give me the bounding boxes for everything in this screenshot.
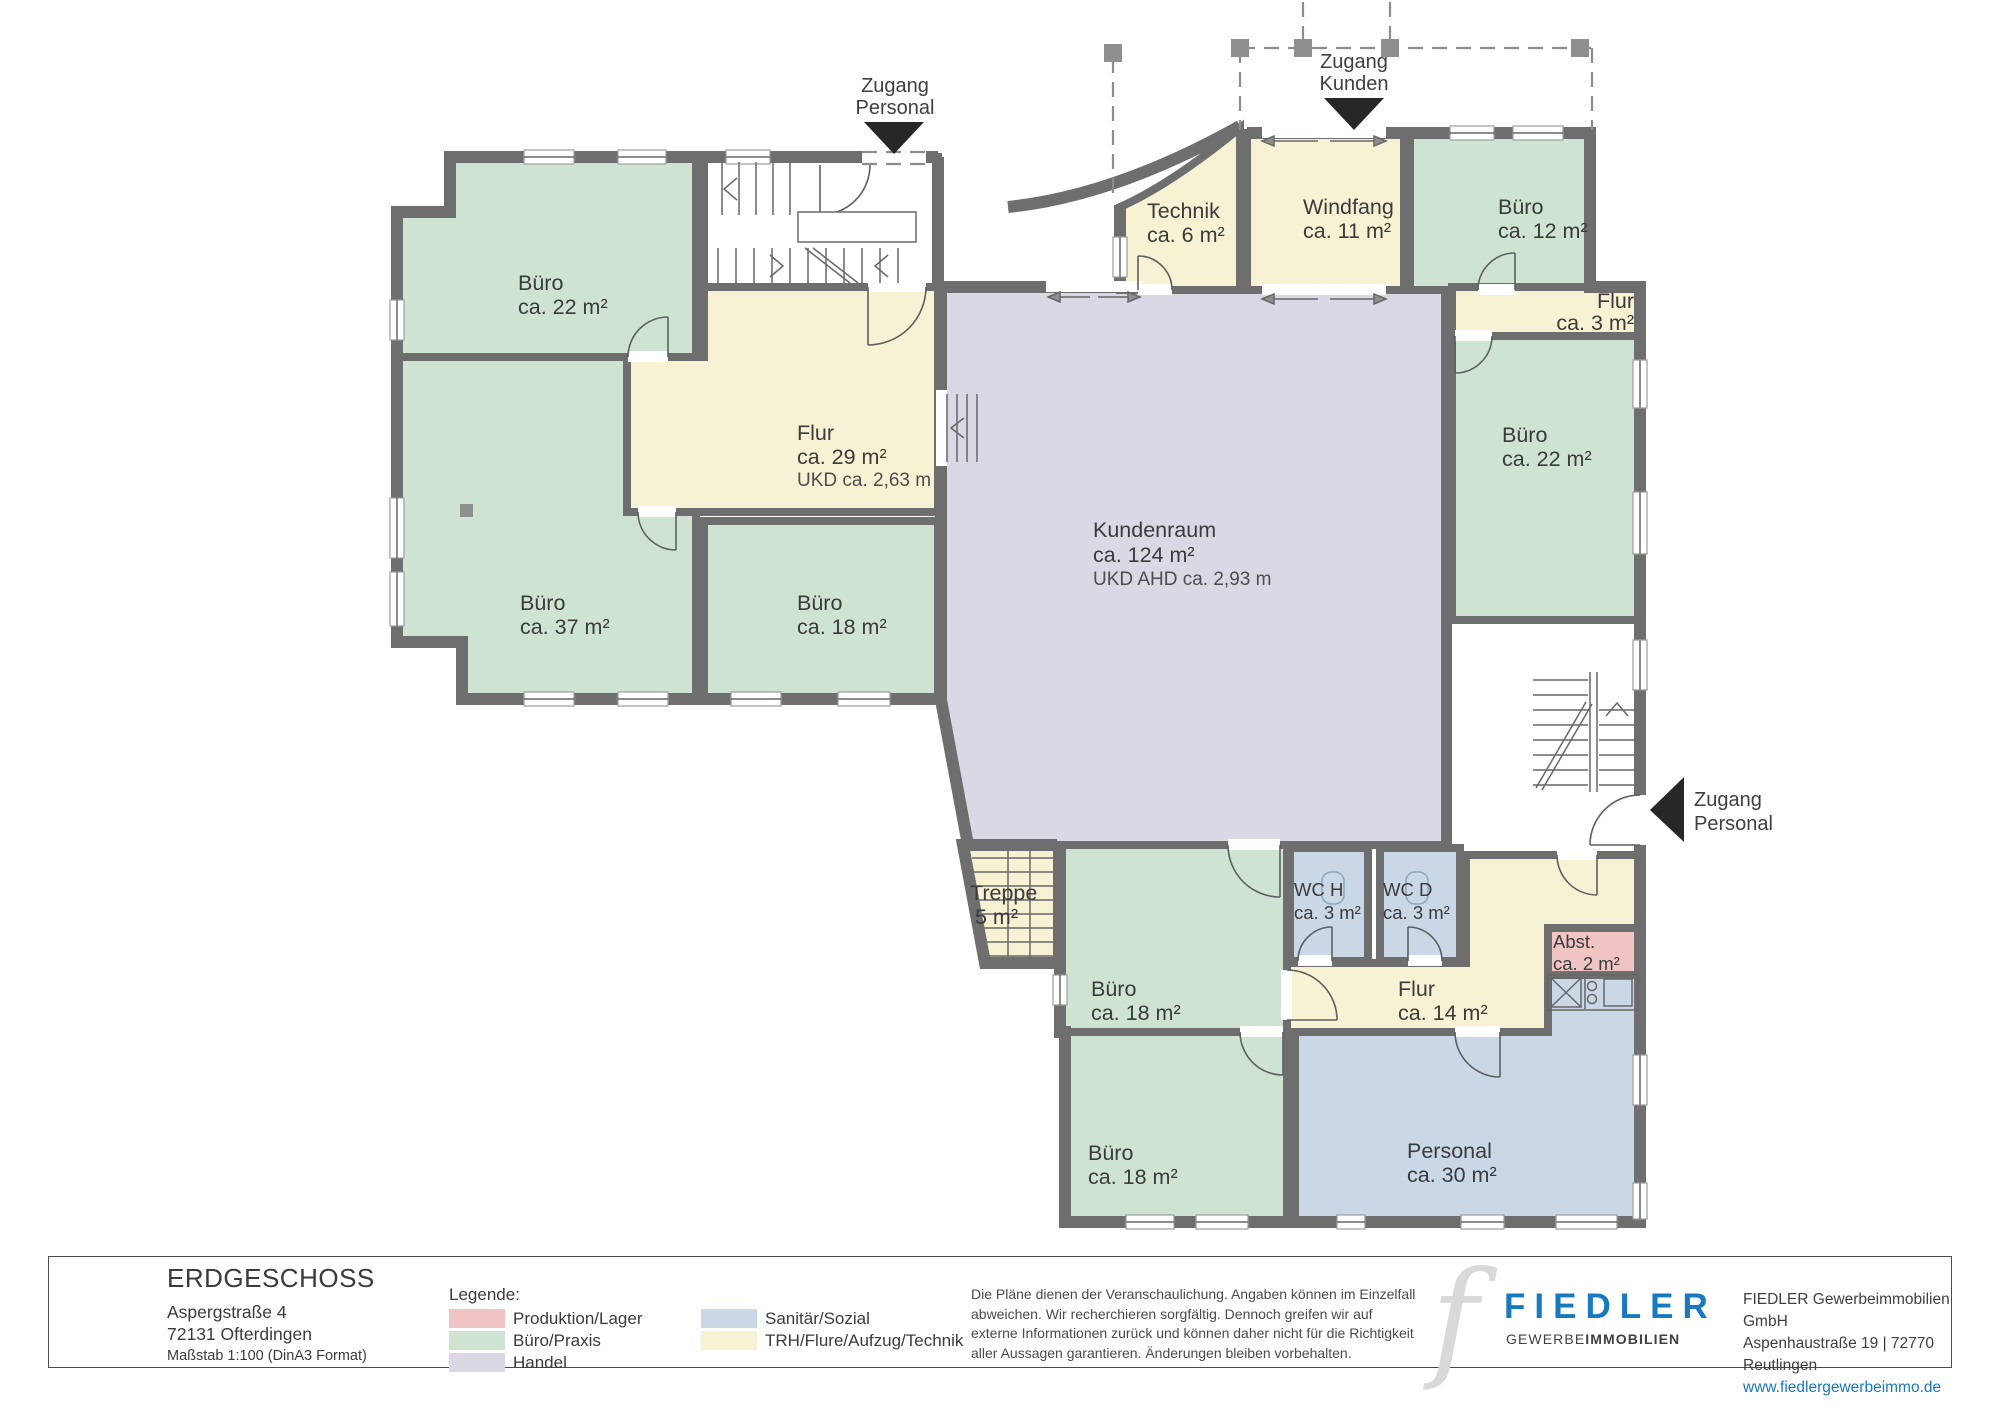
room-stairwell-right [1448,620,1640,855]
legend-title: Legende: [449,1285,520,1305]
room-label: ca. 18 m² [1091,1001,1181,1025]
company-street: Aspenhaustraße 19 | 72770 Reutlingen [1743,1333,1951,1377]
address-line: Aspergstraße 4 [167,1302,287,1323]
room-label: Büro [518,271,563,295]
room-buero-22-left [397,157,696,357]
legend-label: Produktion/Lager [513,1309,642,1329]
entrance-top-center: Zugang Kunden [1320,51,1389,130]
entrance-label: Personal [1694,813,1773,835]
company-website-link[interactable]: www.fiedlergewerbeimmo.de [1743,1377,1951,1399]
room-label: ca. 6 m² [1147,223,1225,247]
room-label: Personal [1407,1139,1492,1163]
room-label: Treppe [970,881,1037,905]
canopy-post [1231,39,1249,57]
legend-label: Büro/Praxis [513,1331,601,1351]
disclaimer-line: externe Informationen zurück und können … [971,1324,1415,1344]
legend-label: Sanitär/Sozial [765,1309,870,1329]
room-label: Kundenraum [1093,518,1216,542]
room-label: Büro [797,591,842,615]
room-label: ca. 30 m² [1407,1163,1497,1187]
room-label: Büro [1498,195,1543,219]
floorplan-page: Zugang Personal Zugang Kunden Zugang Per… [0,0,2000,1414]
entrance-right: Zugang Personal [1650,777,1773,842]
room-label: ca. 124 m² [1093,543,1195,567]
company-block: FIEDLER Gewerbeimmobilien GmbH Aspenhaus… [1743,1289,1951,1399]
entrance-label: Zugang [861,75,929,97]
room-label: ca. 3 m² [1383,902,1450,923]
room-label: Flur [1597,289,1634,313]
room-label: Flur [797,421,834,445]
floor-title: ERDGESCHOSS [167,1263,375,1294]
scale-note: Maßstab 1:100 (DinA3 Format) [167,1348,367,1364]
disclaimer: Die Pläne dienen der Veranschaulichung. … [971,1285,1415,1363]
room-label: ca. 3 m² [1556,311,1634,335]
disclaimer-line: aller Aussagen garantieren. Änderungen b… [971,1344,1415,1364]
room-label: Büro [1088,1141,1133,1165]
canopy-post [1294,39,1312,57]
room-label: ca. 37 m² [520,615,610,639]
room-label: ca. 2 m² [1553,953,1620,974]
entrance-label: Kunden [1320,73,1389,95]
room-label: WC H [1294,879,1343,900]
entrance-label: Zugang [1694,789,1762,811]
room-label: Abst. [1553,931,1595,952]
room-label: Büro [1502,423,1547,447]
room-label: UKD AHD ca. 2,93 m [1093,569,1271,590]
legend-swatch-trh [701,1331,757,1350]
room-buero-22-right [1452,336,1640,620]
room-buero-18-bottom [1065,1032,1287,1222]
legend-label: TRH/Flure/Aufzug/Technik [765,1331,963,1351]
legend-swatch-buero [449,1331,505,1350]
column [460,504,473,517]
legend-swatch-produktion [449,1309,505,1328]
room-label: ca. 18 m² [1088,1165,1178,1189]
entrance-arrow-left-icon [1650,777,1684,842]
brand-subtitle: GEWERBEIMMOBILIEN [1506,1331,1680,1347]
brand-name: FIEDLER [1504,1287,1717,1327]
disclaimer-line: abweichen. Wir recherchieren sorgfältig.… [971,1305,1415,1325]
disclaimer-line: Die Pläne dienen der Veranschaulichung. … [971,1285,1415,1305]
room-label: UKD ca. 2,63 m [797,470,931,491]
company-name: FIEDLER Gewerbeimmobilien GmbH [1743,1289,1951,1333]
floorplan-drawing: Zugang Personal Zugang Kunden Zugang Per… [0,0,2000,1256]
room-label: ca. 22 m² [518,295,608,319]
title-block: ERDGESCHOSS Aspergstraße 4 72131 Ofterdi… [48,1256,1952,1368]
room-label: ca. 14 m² [1398,1001,1488,1025]
canopy-post [1104,44,1122,62]
room-label: ca. 12 m² [1498,219,1588,243]
room-label: Technik [1147,199,1220,223]
room-label: ca. 3 m² [1294,902,1361,923]
brand-subtitle-normal: GEWERBE [1506,1331,1585,1347]
room-label: WC D [1383,879,1432,900]
room-label: Büro [1091,977,1136,1001]
room-label: 5 m² [975,905,1018,929]
brand-subtitle-bold: IMMOBILIEN [1585,1331,1680,1347]
room-label: Windfang [1303,195,1394,219]
room-label: ca. 29 m² [797,445,887,469]
room-label: ca. 18 m² [797,615,887,639]
legend-swatch-sanitaer [701,1309,757,1328]
entrance-label: Personal [856,97,935,119]
room-label: ca. 22 m² [1502,447,1592,471]
room-label: Flur [1398,977,1435,1001]
room-label: ca. 11 m² [1303,219,1391,243]
canopy-post [1571,39,1589,57]
address-line: 72131 Ofterdingen [167,1324,312,1345]
entrance-top-left: Zugang Personal [856,75,935,154]
entrance-arrow-down-icon [1324,98,1384,130]
legend-label: Handel [513,1353,567,1373]
entrance-label: Zugang [1320,51,1388,73]
room-label: Büro [520,591,565,615]
brand-f-glyph-icon: f [1431,1245,1478,1394]
legend-swatch-handel [449,1353,505,1372]
